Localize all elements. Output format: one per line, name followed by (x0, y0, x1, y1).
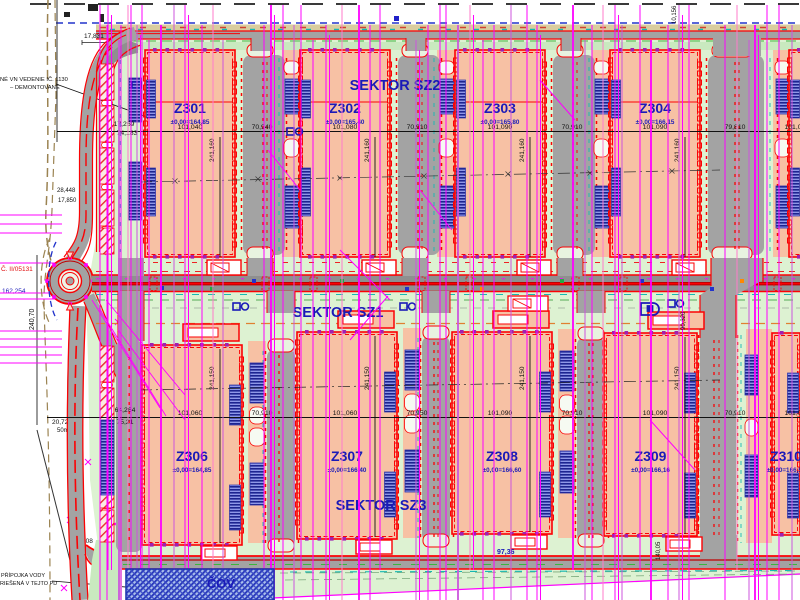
svg-text:SEKTOR SZ3: SEKTOR SZ3 (336, 498, 427, 514)
svg-text:±0,00=166,40: ±0,00=166,40 (328, 467, 367, 474)
svg-text:140,05: 140,05 (656, 541, 662, 560)
svg-text:241,150: 241,150 (519, 366, 526, 390)
svg-text:241,160: 241,160 (519, 138, 526, 162)
svg-text:79,810: 79,810 (725, 124, 746, 131)
svg-text:17,850: 17,850 (58, 198, 77, 204)
svg-text:20,72: 20,72 (52, 419, 69, 426)
svg-text:70,910: 70,910 (725, 410, 746, 417)
svg-text:28,448: 28,448 (57, 188, 76, 194)
svg-text:ČOV: ČOV (207, 576, 236, 591)
svg-text:90,320: 90,320 (681, 311, 687, 330)
svg-text:70,950: 70,950 (407, 410, 428, 417)
svg-text:162,254: 162,254 (2, 288, 26, 295)
svg-text:NÉ VN VEDENIE IČ. 1130: NÉ VN VEDENIE IČ. 1130 (0, 76, 68, 83)
svg-text:101,090: 101,090 (643, 410, 668, 417)
svg-text:97,36: 97,36 (497, 549, 515, 556)
svg-text:RIEŠENÁ V TEJTO PD: RIEŠENÁ V TEJTO PD (0, 580, 57, 587)
svg-text:70,910: 70,910 (252, 410, 273, 417)
svg-text:17,831: 17,831 (84, 33, 104, 40)
svg-text:Z308: Z308 (486, 448, 518, 464)
svg-text:101,040: 101,040 (178, 124, 203, 131)
svg-text:101,090: 101,090 (488, 124, 513, 131)
svg-text:101,090: 101,090 (488, 410, 513, 417)
svg-text:70,940: 70,940 (252, 124, 273, 131)
svg-text:Z306: Z306 (176, 448, 208, 464)
svg-text:±0,00=166,60: ±0,00=166,60 (483, 467, 522, 474)
svg-text:– DEMONTOVANÉ: – DEMONTOVANÉ (10, 84, 60, 91)
svg-text:PŘÍPOJKA VODY: PŘÍPOJKA VODY (1, 571, 45, 579)
svg-text:SEKTOR SZ2: SEKTOR SZ2 (350, 78, 441, 94)
svg-text:64,264: 64,264 (115, 407, 136, 414)
svg-text:Č. II/05131: Č. II/05131 (1, 264, 33, 273)
svg-text:70,910: 70,910 (407, 124, 428, 131)
svg-text:240,70: 240,70 (29, 308, 36, 330)
svg-text:101,080: 101,080 (333, 124, 358, 131)
svg-text:241,150: 241,150 (674, 366, 681, 390)
svg-text:101,060: 101,060 (333, 410, 358, 417)
svg-text:10,156: 10,156 (672, 5, 678, 24)
svg-text:±0,00=164,85: ±0,00=164,85 (173, 467, 212, 474)
svg-text:241,160: 241,160 (674, 138, 681, 162)
svg-text:Z310: Z310 (770, 448, 800, 464)
svg-text:101,090: 101,090 (643, 124, 668, 131)
